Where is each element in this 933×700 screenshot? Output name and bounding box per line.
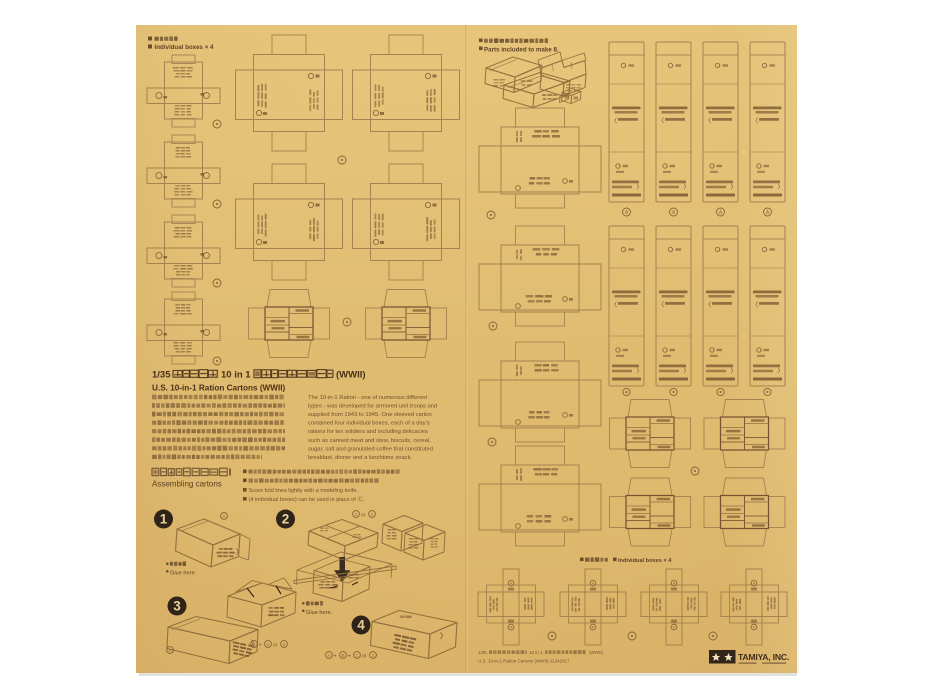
svg-text:3: 3 — [173, 599, 181, 614]
svg-text:U.S. 10-in-1 Ration Cartons (W: U.S. 10-in-1 Ration Cartons (WWII) 11242… — [478, 659, 570, 664]
svg-text:〉: 〉 — [637, 367, 643, 375]
svg-text:10 in 1: 10 in 1 — [221, 370, 251, 381]
svg-text:〉: 〉 — [731, 183, 737, 191]
svg-text:+: + — [259, 643, 262, 649]
svg-text:(WWII): (WWII) — [336, 370, 366, 381]
svg-text:Glue here.: Glue here. — [170, 571, 197, 577]
svg-text:〉: 〉 — [684, 367, 690, 375]
svg-text:Individual boxes × 4: Individual boxes × 4 — [618, 558, 672, 564]
svg-text:or: or — [361, 513, 366, 519]
svg-text:A: A — [328, 653, 331, 658]
svg-text:such as canned meat and stew,: such as canned meat and stew, biscuits, … — [308, 438, 431, 444]
svg-text:〉: 〉 — [637, 183, 643, 191]
svg-text:〉: 〉 — [684, 183, 690, 191]
svg-text:C: C — [354, 512, 357, 517]
svg-text:〈: 〈 — [658, 117, 664, 125]
svg-text:+: + — [348, 654, 351, 660]
svg-text:〈: 〈 — [611, 117, 617, 125]
svg-text:B: B — [342, 653, 345, 658]
svg-text:The 10-in-1 Ration - one of nu: The 10-in-1 Ration - one of numerous dif… — [308, 395, 428, 401]
svg-text:1/35: 1/35 — [152, 370, 171, 381]
svg-text:2: 2 — [282, 512, 290, 527]
svg-text:U.S. 10-in-1 Ration Cartons (W: U.S. 10-in-1 Ration Cartons (WWII) — [152, 384, 286, 393]
svg-text:10 in 1: 10 in 1 — [529, 650, 543, 655]
svg-text:1: 1 — [160, 512, 168, 527]
svg-text:〉: 〉 — [440, 632, 447, 640]
svg-text:〉: 〉 — [778, 367, 784, 375]
svg-text:〈: 〈 — [658, 301, 664, 309]
svg-text:(WWII): (WWII) — [589, 650, 603, 655]
svg-text:1/35: 1/35 — [478, 650, 487, 655]
svg-text:〈: 〈 — [752, 117, 758, 125]
svg-text:4: 4 — [357, 618, 365, 633]
svg-text:(4 individual boxes) can be us: (4 individual boxes) can be used in plac… — [249, 495, 365, 503]
svg-text:〉: 〉 — [778, 183, 784, 191]
svg-text:Assembling cartons: Assembling cartons — [152, 480, 222, 489]
svg-text:supplied from 1943 to 1945. On: supplied from 1943 to 1945. One sleeved … — [308, 412, 432, 418]
svg-text:〉: 〉 — [236, 548, 243, 556]
svg-text:contained four individual boxe: contained four individual boxes, each of… — [308, 421, 430, 427]
svg-text:B: B — [253, 642, 256, 647]
svg-text:〈: 〈 — [611, 301, 617, 309]
svg-text:〈: 〈 — [705, 301, 711, 309]
svg-text:Glue here.: Glue here. — [306, 610, 333, 616]
svg-text:A: A — [169, 648, 172, 653]
svg-text:A: A — [223, 514, 226, 519]
svg-text:〉: 〉 — [731, 367, 737, 375]
svg-text:breakfast, dinner and a luncht: breakfast, dinner and a lunchtime snack. — [308, 455, 412, 461]
svg-text:C: C — [355, 653, 358, 658]
svg-text:TAMIYA, INC.: TAMIYA, INC. — [738, 652, 789, 662]
svg-text:Individual boxes × 4: Individual boxes × 4 — [155, 44, 215, 51]
svg-text:types - was developed for armo: types - was developed for armored unit t… — [308, 404, 437, 410]
svg-text:Score fold lines lightly with: Score fold lines lightly with a modeling… — [249, 488, 359, 494]
svg-text:or: or — [362, 654, 367, 660]
svg-text:C: C — [266, 642, 269, 647]
svg-text:or: or — [273, 643, 278, 649]
svg-text:〈: 〈 — [752, 301, 758, 309]
svg-text:sugar, salt and granulated cof: sugar, salt and granulated coffee that c… — [308, 446, 433, 452]
svg-text:〈: 〈 — [705, 117, 711, 125]
svg-text:Parts included to make 8.: Parts included to make 8. — [484, 47, 559, 54]
svg-text:rations for ten soldiers and i: rations for ten soldiers and including d… — [308, 429, 428, 435]
svg-text:+: + — [334, 654, 337, 660]
